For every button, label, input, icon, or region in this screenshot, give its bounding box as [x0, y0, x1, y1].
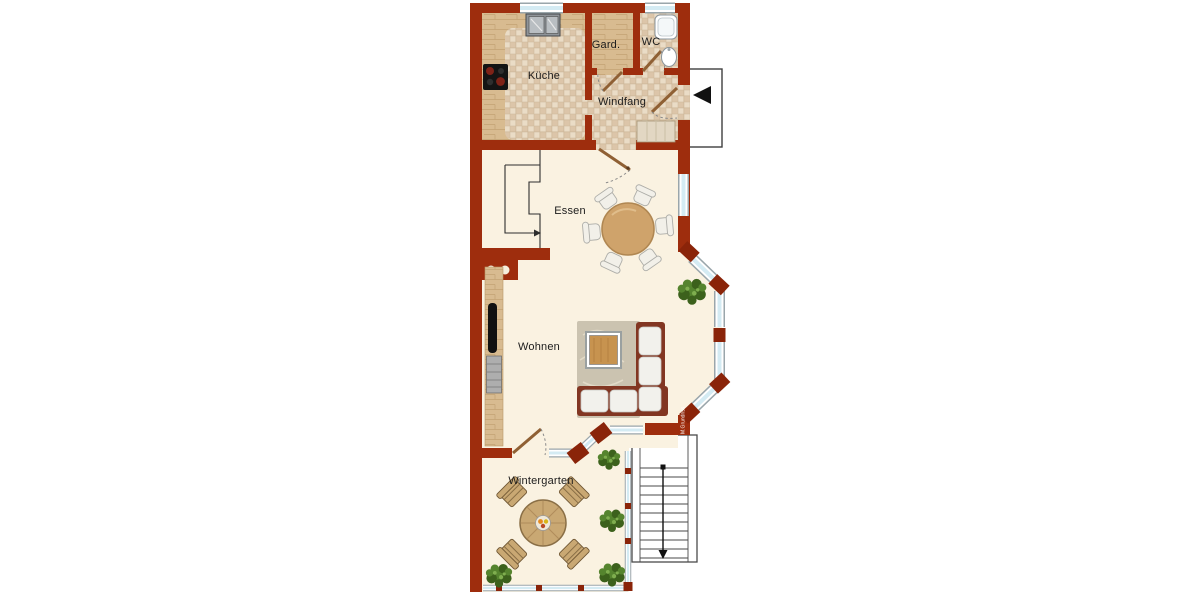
tv — [488, 303, 497, 353]
coffee-table — [586, 332, 621, 368]
doormat — [637, 121, 675, 142]
wc-washbasin — [662, 48, 677, 67]
kitchen-sink — [526, 14, 560, 36]
watermark-text: M.Grundriss — [681, 406, 687, 434]
tv-sideboard — [485, 267, 503, 446]
exterior-stairs — [632, 435, 697, 562]
room-label-wohnen: Wohnen — [518, 341, 560, 353]
floor-plan: M.Grundriss Küche Gard. WC Windfang Esse… — [0, 0, 1200, 600]
room-label-wc: WC — [642, 36, 661, 48]
room-label-essen: Essen — [554, 205, 586, 217]
room-label-gard: Gard. — [592, 39, 621, 51]
floor-plan-svg: M.Grundriss — [0, 0, 1200, 600]
stereo-unit — [487, 356, 502, 393]
room-label-kueche: Küche — [528, 70, 560, 82]
entrance-porch — [685, 69, 722, 147]
fruit-bowl — [536, 516, 551, 531]
room-label-wintergarten: Wintergarten — [508, 475, 573, 487]
room-label-windfang: Windfang — [598, 96, 646, 108]
cooktop — [483, 64, 508, 90]
